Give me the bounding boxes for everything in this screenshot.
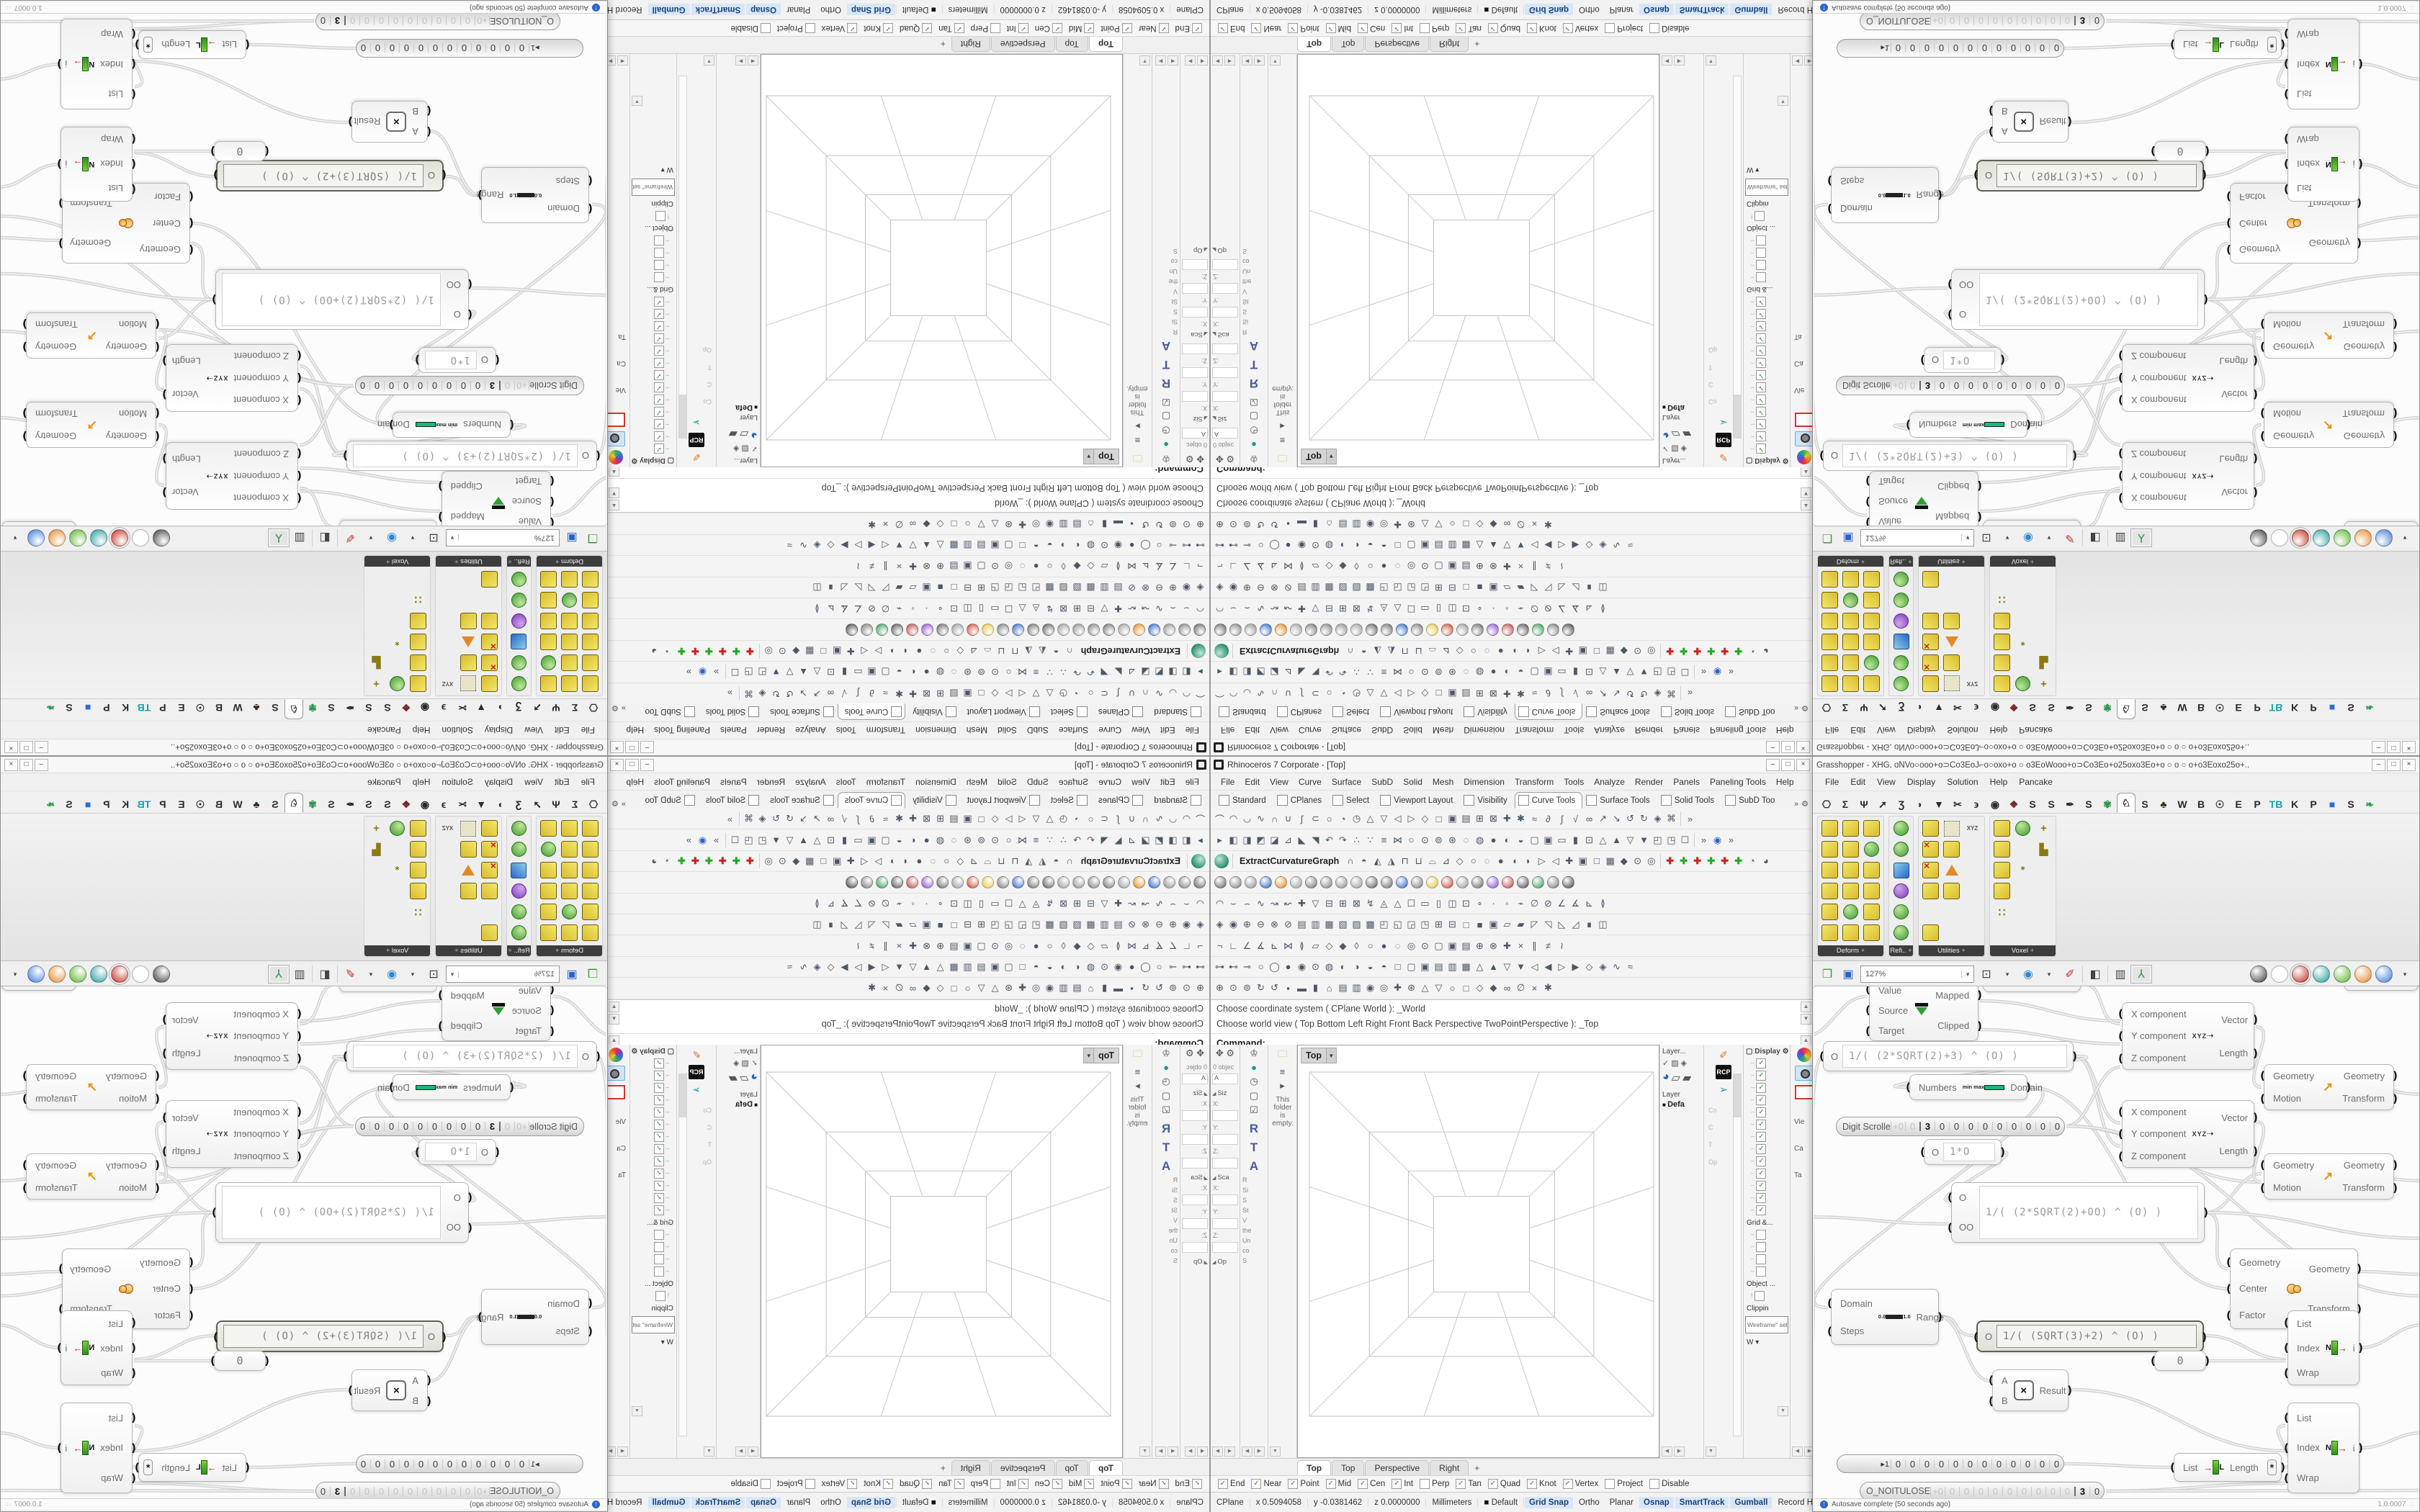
- panel-scroll-arrows[interactable]: ▼: [1706, 55, 1716, 66]
- toolbar-icon[interactable]: ○: [1254, 959, 1268, 975]
- osnap-mid[interactable]: ✓Mid: [1326, 23, 1352, 33]
- clipped-node[interactable]: | ···|·· ···: [2344, 986, 2419, 991]
- status-toggle-ortho[interactable]: Ortho: [1574, 4, 1604, 15]
- cplane-axis-icon[interactable]: ✚: [743, 643, 757, 659]
- input-port-nub[interactable]: (: [1973, 1332, 1978, 1343]
- render-sphere-icon[interactable]: [1562, 876, 1574, 888]
- status-segment[interactable]: Millimeters: [942, 5, 994, 14]
- toolbar-icon[interactable]: △: [1016, 600, 1029, 616]
- osnap-project[interactable]: Project: [1605, 23, 1643, 33]
- status-segment[interactable]: CPlane: [1170, 5, 1209, 14]
- resize-grip-icon[interactable]: ∷: [6, 4, 11, 12]
- panel-scroll-arrows[interactable]: ▼: [1270, 1446, 1281, 1457]
- zoom-extents-icon[interactable]: ⊡: [1978, 967, 1995, 981]
- toolbar-icon[interactable]: ◇: [1582, 959, 1596, 975]
- component-icon[interactable]: [1941, 652, 1962, 673]
- component-icon[interactable]: [1891, 652, 1912, 673]
- toolbar-icon[interactable]: ◲: [1002, 917, 1016, 932]
- panel-resources[interactable]: ♔●◷▢☑RTARSiSStVtheUncoS◀▶: [1152, 1045, 1180, 1458]
- vector-xyz[interactable]: X componentY componentZ componentXYZ⇢Vec…: [166, 344, 298, 412]
- toolbar-icon[interactable]: ◳: [1418, 580, 1432, 595]
- cplane-axis-icon[interactable]: ✚: [1731, 853, 1745, 869]
- gh-category-tab-3[interactable]: ➚: [528, 796, 547, 813]
- toolbar-icon[interactable]: ∘: [1473, 600, 1487, 616]
- scroller-digit[interactable]: 0: [2035, 1122, 2050, 1131]
- toolbar-icon[interactable]: ▮: [1569, 664, 1582, 680]
- toolbar-icon[interactable]: ◊: [1350, 558, 1363, 574]
- toolbar-icon[interactable]: ▣: [865, 664, 879, 680]
- toolbar-icon[interactable]: ◩: [1254, 832, 1268, 848]
- component-icon[interactable]: [559, 652, 580, 673]
- toolbar-icon[interactable]: ⌓: [981, 853, 995, 869]
- gh-category-tab-24[interactable]: TB: [2267, 796, 2285, 813]
- gh-menu-file[interactable]: File: [576, 724, 600, 737]
- toolbar-icon[interactable]: ▽: [974, 980, 988, 996]
- scroller-digit[interactable]: 0: [2060, 17, 2074, 26]
- gh-category-tab-8[interactable]: ϶: [1967, 796, 1986, 813]
- toolbar-icon[interactable]: ○: [1404, 832, 1418, 848]
- close-button[interactable]: ×: [610, 759, 624, 771]
- component-icon[interactable]: [437, 590, 458, 611]
- number-panel[interactable]: 0(): [2154, 1351, 2206, 1371]
- component-icon[interactable]: [408, 860, 429, 881]
- input-port-nub[interactable]: (: [131, 89, 136, 99]
- panel-libraries[interactable]: 🗀≡▸This folder is empty.▼: [1123, 54, 1152, 467]
- preview-half-icon[interactable]: [48, 529, 66, 546]
- status-toggle-planar[interactable]: Planar: [1605, 1497, 1638, 1508]
- toolbar-icon[interactable]: ◫: [961, 600, 974, 616]
- toolbar-icon[interactable]: ⊿: [1439, 643, 1453, 659]
- toolbar-overflow-icon[interactable]: »: [1683, 811, 1697, 827]
- toolbar-icon[interactable]: ⌢: [1166, 896, 1180, 912]
- toolbar-icon[interactable]: ◐: [1500, 664, 1514, 680]
- gh-category-tab-15[interactable]: ✾: [2098, 796, 2117, 813]
- panel-scroll-arrows[interactable]: ▼: [1139, 1446, 1150, 1457]
- toolbar-icon[interactable]: ▢: [1528, 832, 1541, 848]
- toolbar-icon[interactable]: ⊟: [1322, 600, 1336, 616]
- toolbar-icon[interactable]: ≡: [1029, 832, 1043, 848]
- toolbar-icon[interactable]: ○: [1043, 938, 1057, 954]
- toolbar-icon[interactable]: ○: [1466, 643, 1480, 659]
- toolbar-icon[interactable]: ◮: [1022, 643, 1036, 659]
- toolbar-icon[interactable]: ⋈: [1281, 558, 1295, 574]
- clipped-node[interactable]: [339, 520, 437, 526]
- panel-layers[interactable]: Layer...✓▨◈◕▱▰LayerDefa◀▶: [1659, 54, 1703, 467]
- toolbar-icon[interactable]: ▣: [1418, 537, 1432, 553]
- output-port-nub[interactable]: ): [1977, 990, 1982, 1001]
- toolbar-icon[interactable]: ⋈: [1391, 832, 1404, 848]
- component-icon[interactable]: [508, 901, 529, 922]
- toolbar-icon[interactable]: ▭: [1555, 664, 1569, 680]
- toolbar-icon[interactable]: ✚: [1391, 516, 1404, 532]
- palette-group-label[interactable]: Utilities: [1919, 556, 1984, 567]
- minimize-button[interactable]: –: [2372, 759, 2385, 771]
- preview-half-icon[interactable]: [48, 966, 66, 983]
- toolbar-icon[interactable]: ◌: [947, 832, 961, 848]
- component-icon[interactable]: [408, 631, 429, 652]
- input-port-nub[interactable]: (: [2118, 395, 2123, 405]
- display-option-checked[interactable]: –✓: [1744, 1204, 1790, 1216]
- input-port-nub[interactable]: (: [1948, 1192, 1953, 1203]
- input-port-nub[interactable]: (: [2284, 1443, 2289, 1454]
- output-port-nub[interactable]: ): [389, 419, 394, 430]
- render-sphere-icon[interactable]: [982, 624, 994, 636]
- component-icon[interactable]: [458, 860, 479, 881]
- toolbar-icon[interactable]: ▬: [1295, 516, 1309, 532]
- menu-transform[interactable]: Transform: [1510, 724, 1558, 737]
- output-port-nub[interactable]: ): [213, 1332, 218, 1343]
- input-port-nub[interactable]: (: [155, 1071, 160, 1081]
- input-port-nub[interactable]: (: [2260, 318, 2265, 329]
- toolbar-icon[interactable]: □: [974, 811, 988, 827]
- bounds[interactable]: Numbersmin maxDomain(): [1909, 1074, 2027, 1100]
- render-sphere-icon[interactable]: [1260, 624, 1272, 636]
- clipped-node[interactable]: | ···|·· ···: [2344, 521, 2419, 526]
- input-port-nub[interactable]: (: [1865, 517, 1870, 526]
- toolbar-icon[interactable]: ▽: [1098, 600, 1111, 616]
- osnap-int[interactable]: ✓Int: [1007, 23, 1028, 33]
- toolbar-icon[interactable]: ⌒: [1213, 685, 1227, 701]
- menu-dimension[interactable]: Dimension: [911, 724, 961, 737]
- gh-category-tab-26[interactable]: P: [2304, 796, 2323, 813]
- toolbar-icon[interactable]: ⊔: [995, 853, 1008, 869]
- scroller-digit[interactable]: 0: [1948, 44, 1963, 53]
- toolbar-icon[interactable]: ◳: [988, 580, 1002, 595]
- component-icon[interactable]: [2012, 818, 2033, 839]
- toolbar-tab-visibility[interactable]: Visibility: [1460, 703, 1514, 720]
- component-icon[interactable]: [1962, 590, 1983, 611]
- expression-selected[interactable]: O1/( (SQRT(3)+2) ^ (O) )(): [1976, 160, 2204, 192]
- toolbar-icon[interactable]: ◈: [756, 685, 769, 701]
- toolbar-icon[interactable]: ◪: [1268, 832, 1281, 848]
- toolbar-tab-subd-too[interactable]: SubD Too: [638, 703, 699, 720]
- menu-view[interactable]: View: [1265, 775, 1293, 788]
- toolbar-icon[interactable]: ⊗: [1139, 580, 1152, 595]
- layer-big-icons[interactable]: ◕▱▰: [1660, 426, 1703, 443]
- toolbar-icon[interactable]: ▭: [851, 832, 865, 848]
- scroller-digit[interactable]: 0: [2035, 1459, 2049, 1469]
- gh-category-tab-15[interactable]: ✾: [303, 699, 322, 716]
- render-sphere-icon[interactable]: [1103, 876, 1115, 888]
- toolbar-icon[interactable]: ◁: [1549, 643, 1562, 659]
- component-icon[interactable]: [1962, 631, 1983, 652]
- color-wheel-icon[interactable]: [609, 450, 624, 464]
- output-port-nub[interactable]: ): [315, 1486, 317, 1497]
- gh-category-tab-13[interactable]: ✒: [341, 796, 359, 813]
- camera-widget-icon[interactable]: ▥: [2112, 531, 2129, 545]
- panel-scroll-arrows[interactable]: ◀▶: [1155, 1446, 1178, 1457]
- toolbar-icon[interactable]: ⋈: [1391, 664, 1404, 680]
- scroller-digit[interactable]: 0: [385, 1122, 399, 1131]
- toolbar-icon[interactable]: ∥: [1528, 558, 1541, 574]
- rcp-badge-icon[interactable]: RCP: [689, 433, 704, 447]
- toolbar-icon[interactable]: √: [1569, 685, 1582, 701]
- output-port-nub[interactable]: ): [2357, 1264, 2362, 1274]
- component-icon[interactable]: [2012, 839, 2033, 860]
- toolbar-icon[interactable]: ⊙: [776, 853, 789, 869]
- toolbar-icon[interactable]: ✚: [906, 685, 920, 701]
- viewport-tab-right-3[interactable]: Right: [951, 37, 990, 52]
- osnap-vertex[interactable]: ✓Vertex: [822, 23, 858, 33]
- cplane-axis-icon[interactable]: ✚: [689, 643, 702, 659]
- toolbar-icon[interactable]: ∩: [1268, 685, 1281, 701]
- toolbar-icon[interactable]: ▬: [1111, 980, 1125, 996]
- gh-menu-solution[interactable]: Solution: [436, 724, 478, 737]
- display-option-checked[interactable]: –✓: [630, 1118, 676, 1130]
- toolbar-tab-cplanes[interactable]: CPlanes: [1091, 703, 1147, 720]
- toolbar-icon[interactable]: ⊙: [1418, 832, 1432, 848]
- zoom-dropdown[interactable]: 127%▼: [1860, 529, 1974, 546]
- toolbar-icon[interactable]: ◉: [1043, 980, 1057, 996]
- display-option-unchecked[interactable]: –: [1744, 1265, 1790, 1277]
- toolbar-icon[interactable]: ▽: [974, 516, 988, 532]
- gh-category-tab-13[interactable]: ✒: [2061, 796, 2079, 813]
- osnap-perp[interactable]: Perp: [1420, 1479, 1449, 1489]
- expression[interactable]: OOO1/( (2*SQRT(2)+OO) ^ (O) )((): [1951, 1182, 2205, 1243]
- scroller-digit[interactable]: 0: [1919, 1459, 1934, 1469]
- toolbar-icon[interactable]: ✚: [1500, 685, 1514, 701]
- toolbar-icon[interactable]: ◦: [1500, 896, 1514, 912]
- toolbar-icon[interactable]: ◫: [1446, 896, 1459, 912]
- scroller-digit[interactable]: 0: [486, 44, 501, 53]
- scroller-digit[interactable]: 0: [1973, 1487, 1988, 1496]
- palette-group-label[interactable]: Deform: [537, 556, 602, 567]
- viewport-tab-right-3[interactable]: Right: [951, 1460, 990, 1475]
- toolbar-icon[interactable]: ◳: [742, 664, 756, 680]
- zoom-extents-icon[interactable]: ⊡: [425, 531, 442, 545]
- scroller-digit[interactable]: 0: [442, 381, 457, 390]
- gh-title-bar[interactable]: Grasshopper - XHG. oNVo○ooo+o⊃Co3EoJ⌐o○o…: [1, 757, 607, 773]
- clipping-rect-icon[interactable]: [1795, 1085, 1814, 1099]
- component-icon[interactable]: [1891, 590, 1912, 611]
- gh-menu-help[interactable]: Help: [408, 724, 436, 737]
- toolbar-icon[interactable]: ■: [933, 580, 947, 595]
- scroller-digit[interactable]: 0: [1945, 1487, 1959, 1496]
- toolbar-icon[interactable]: ▷: [871, 853, 885, 869]
- toolbar-icon[interactable]: ⊖: [1152, 917, 1166, 932]
- toolbar-icon[interactable]: □: [974, 685, 988, 701]
- toolbar-icon[interactable]: ○: [940, 853, 954, 869]
- input-port-nub[interactable]: (: [189, 1284, 194, 1295]
- panel-scroll-arrows[interactable]: ▼: [704, 1446, 714, 1457]
- scroller-digit[interactable]: 0: [375, 17, 389, 26]
- output-port-nub[interactable]: ): [58, 1264, 63, 1274]
- toolbar-icon[interactable]: ◁: [858, 643, 871, 659]
- toolbar-icon[interactable]: ⊟: [961, 917, 974, 932]
- toolbar-icon[interactable]: □: [947, 580, 961, 595]
- toolbar-icon[interactable]: ◇: [1322, 938, 1336, 954]
- input-port-nub[interactable]: (: [442, 1332, 447, 1343]
- output-port-nub[interactable]: ): [162, 1014, 167, 1025]
- toolbar-icon[interactable]: ⊚: [974, 832, 988, 848]
- render-sphere-icon[interactable]: [1471, 624, 1484, 636]
- toolbar-icon[interactable]: ◭: [1371, 643, 1384, 659]
- toolbar-icon[interactable]: ∫: [851, 811, 865, 827]
- toolbar-icon[interactable]: ◎: [1029, 980, 1043, 996]
- toolbar-icon[interactable]: ◑: [1057, 959, 1070, 975]
- cplane-axis-icon[interactable]: ✚: [702, 853, 716, 869]
- input-port-nub[interactable]: (: [189, 1310, 194, 1321]
- toolbar-icon[interactable]: ◈: [756, 811, 769, 827]
- sphere-icon[interactable]: ●: [1152, 439, 1180, 450]
- toolbar-icon[interactable]: △: [1418, 980, 1432, 996]
- menu-help[interactable]: Help: [1772, 724, 1798, 737]
- toolbar-icon[interactable]: ▩: [1363, 917, 1377, 932]
- component-icon[interactable]: [538, 818, 559, 839]
- render-sphere-icon[interactable]: [1118, 624, 1130, 636]
- preview-eye-icon[interactable]: ◉: [2020, 967, 2037, 981]
- toolbar-icon[interactable]: ↘: [797, 811, 810, 827]
- display-option-checked[interactable]: –✓: [630, 1081, 676, 1094]
- scroller-digit[interactable]: 0: [360, 1487, 375, 1496]
- toolbar-tab-standard[interactable]: Standard: [1147, 703, 1205, 720]
- toolbar-icon[interactable]: ⊠: [1350, 600, 1363, 616]
- toolbar-icon[interactable]: ▷: [1404, 811, 1418, 827]
- toolbar-icon[interactable]: ≡: [1377, 664, 1391, 680]
- input-port-nub[interactable]: (: [297, 1107, 302, 1117]
- toolbar-icon[interactable]: ◮: [1384, 853, 1398, 869]
- toolbar-icon[interactable]: ▽: [1432, 980, 1446, 996]
- remap-numbers[interactable]: ValueSourceTargetMappedClipped((()): [1869, 986, 1978, 1041]
- command-history-scrollbar[interactable]: ▲▼: [1801, 487, 1811, 510]
- toolbar-icon[interactable]: ◈: [1651, 811, 1664, 827]
- gh-category-tab-6[interactable]: ▼: [1930, 796, 1948, 813]
- component-icon[interactable]: [1941, 922, 1962, 943]
- toolbar-icon[interactable]: ∪: [1281, 811, 1295, 827]
- render-sphere-icon[interactable]: [1193, 624, 1206, 636]
- osnap-disable[interactable]: Disable: [731, 1479, 771, 1489]
- toolbar-tab-visibility[interactable]: Visibility: [1460, 792, 1514, 809]
- scroller-digit[interactable]: 0: [447, 17, 461, 26]
- toolbar-icon[interactable]: ◈: [1213, 917, 1227, 932]
- toolbar-icon[interactable]: □: [1459, 980, 1473, 996]
- osnap-cen[interactable]: ✓Cen: [1358, 23, 1385, 33]
- menu-panels[interactable]: Panels: [716, 724, 751, 737]
- component-icon[interactable]: [1840, 652, 1861, 673]
- input-port-nub[interactable]: (: [2284, 1413, 2289, 1423]
- toolbar-icon[interactable]: ▥: [1098, 917, 1111, 932]
- toolbar-icon[interactable]: ◊: [1350, 938, 1363, 954]
- toolbar-icon[interactable]: ∫: [1555, 685, 1569, 701]
- render-sphere-icon[interactable]: [1487, 876, 1499, 888]
- menu-tools[interactable]: Tools: [832, 724, 861, 737]
- toolbar-icon[interactable]: ⊿: [1281, 832, 1295, 848]
- toolbar-tab-solid-tools[interactable]: Solid Tools: [1657, 792, 1721, 809]
- panel-scroll-arrows[interactable]: ▼: [1778, 96, 1788, 106]
- input-port-nub[interactable]: (: [155, 1183, 160, 1194]
- toolbar-icon[interactable]: ↶: [1322, 664, 1336, 680]
- toolbar-icon[interactable]: ↺: [783, 811, 797, 827]
- toolbar-icon[interactable]: ▽: [1029, 811, 1043, 827]
- eye-icon[interactable]: ◉: [1711, 832, 1724, 848]
- scroller-digit[interactable]: 0: [2045, 17, 2060, 26]
- toolbar-icon[interactable]: ▼: [892, 959, 906, 975]
- toolbar-icon[interactable]: ○: [1446, 516, 1459, 532]
- output-port-nub[interactable]: ): [2253, 1014, 2258, 1025]
- toolbar-icon[interactable]: ◰: [756, 832, 769, 848]
- toolbar-icon[interactable]: ▱: [906, 580, 920, 595]
- output-port-nub[interactable]: ): [356, 1459, 357, 1470]
- gh-category-tab-14[interactable]: S: [2079, 699, 2098, 716]
- toolbar-icon[interactable]: ▰: [892, 580, 906, 595]
- toolbar-icon[interactable]: ✚: [1111, 600, 1125, 616]
- toolbar-icon[interactable]: ◸: [1528, 917, 1541, 932]
- toolbar-icon[interactable]: ○: [1152, 959, 1166, 975]
- toolbar-icon[interactable]: ∟: [1227, 558, 1240, 574]
- toolbar-icon[interactable]: □: [817, 643, 830, 659]
- dropdown-caret-icon[interactable]: ▾: [362, 534, 380, 542]
- toolbar-icon[interactable]: ▼: [1514, 537, 1528, 553]
- toolbar-icon[interactable]: ∿: [1254, 685, 1268, 701]
- render-sphere-icon[interactable]: [1547, 624, 1559, 636]
- input-port-nub[interactable]: (: [264, 1356, 269, 1367]
- input-port-nub[interactable]: (: [131, 1473, 136, 1484]
- component-icon[interactable]: [479, 611, 500, 631]
- render-sphere-icon[interactable]: [1350, 876, 1363, 888]
- toolbar-icon[interactable]: ⌘: [1664, 811, 1678, 827]
- gh-category-tab-20[interactable]: B: [2192, 796, 2210, 813]
- section-siz[interactable]: Siz: [1180, 415, 1209, 428]
- cplane-axis-icon[interactable]: ✚: [743, 853, 757, 869]
- input-port-nub[interactable]: (: [2284, 1343, 2289, 1354]
- panel-scrollbar[interactable]: [1733, 76, 1742, 438]
- toolbar-icon[interactable]: ◷: [1350, 685, 1363, 701]
- box-icon[interactable]: ▢: [1240, 1090, 1268, 1102]
- render-sphere-icon[interactable]: [1133, 624, 1145, 636]
- input-port-nub[interactable]: (: [189, 191, 194, 202]
- open-file-icon[interactable]: ❐: [1819, 967, 1836, 981]
- toolbar-icon[interactable]: ≈: [783, 537, 797, 553]
- osnap-cen[interactable]: ✓Cen: [1035, 23, 1062, 33]
- scroller-digit[interactable]: 0: [429, 44, 443, 53]
- toolbar-icon[interactable]: ○: [1043, 558, 1057, 574]
- toolbar-icon[interactable]: ▦: [1459, 537, 1473, 553]
- component-icon[interactable]: [1819, 569, 1840, 590]
- input-port-nub[interactable]: (: [426, 127, 431, 138]
- toolbar-icon[interactable]: ↯: [1363, 600, 1377, 616]
- toolbar-overflow-icon[interactable]: »: [1683, 685, 1697, 701]
- component-icon[interactable]: [479, 881, 500, 901]
- scroller-digit[interactable]: 0: [2050, 1122, 2064, 1131]
- panel-resources[interactable]: ♔●◷▢☑RTARSiSStVtheUncoS◀▶: [1152, 54, 1180, 467]
- toolbar-icon[interactable]: ×: [892, 558, 906, 574]
- toolbar-icon[interactable]: ▨: [1350, 917, 1363, 932]
- box-icon[interactable]: ▢: [1152, 410, 1180, 422]
- move[interactable]: GeometryMotion↗GeometryTransform(()): [2264, 1153, 2394, 1200]
- gh-category-tab-8[interactable]: ϶: [434, 699, 453, 716]
- status-segment[interactable]: y -0.0381462: [1052, 5, 1112, 14]
- cplane-axis-icon[interactable]: ✚: [716, 643, 730, 659]
- toolbar-icon[interactable]: ⊓: [1008, 853, 1022, 869]
- digit-scroller[interactable]: Digit Scroller+003000000000): [1836, 376, 2065, 395]
- component-icon[interactable]: [1819, 839, 1840, 860]
- gh-category-tab-7[interactable]: ✂: [1948, 699, 1967, 716]
- bake-teal-icon[interactable]: [2313, 966, 2330, 983]
- menu-help[interactable]: Help: [622, 775, 648, 788]
- panel-resources[interactable]: ♔●◷▢☑RTARSiSStVtheUncoS◀▶: [1240, 1045, 1268, 1458]
- component-icon[interactable]: [2033, 922, 2054, 943]
- toolbar-icon[interactable]: ◪: [1139, 664, 1152, 680]
- display-option-unchecked[interactable]: !: [1744, 1290, 1790, 1302]
- component-icon[interactable]: [1819, 673, 1840, 694]
- output-port-nub[interactable]: ): [162, 1048, 167, 1059]
- output-port-nub[interactable]: ): [2202, 169, 2207, 180]
- osnap-point[interactable]: ✓Point: [1101, 1479, 1131, 1489]
- toolbar-icon[interactable]: ◍: [1322, 537, 1336, 553]
- component-icon[interactable]: ∷: [408, 590, 429, 611]
- component-icon[interactable]: ∷: [408, 901, 429, 922]
- toolbar-icon[interactable]: ◈: [1596, 537, 1610, 553]
